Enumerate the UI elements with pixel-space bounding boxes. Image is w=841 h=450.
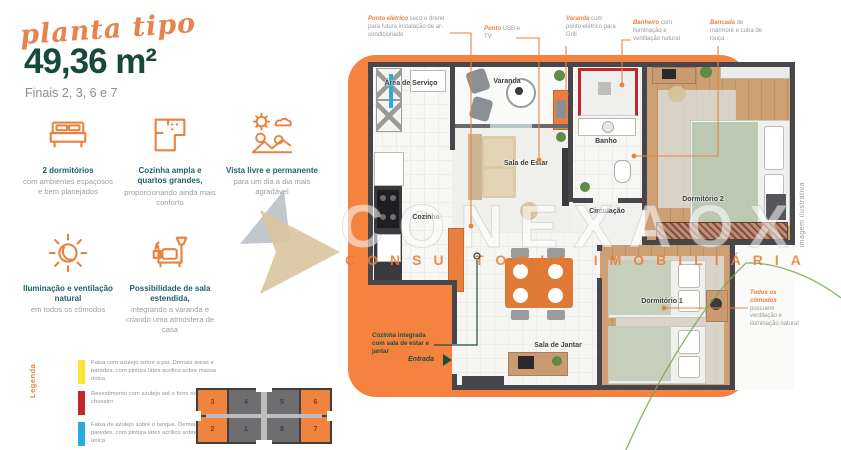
room-label-dormitorio1: Dormitório 1 [614,298,710,305]
feature-description: com ambientes espaçosos e bem planejados [22,177,114,197]
entrada-label: Entrada [408,356,434,363]
wall-outer-top [368,62,795,67]
unit-number: 1 [244,426,248,433]
callout-ponto-eletrico: Ponto elétrico seco e dreno para futura … [368,16,448,39]
callout-banheiro: Banheiro com iluminação e ventilação nat… [633,20,695,43]
callout-bancada: Bancada de mármore e cuba de louça [710,20,768,43]
feature-title: Possibilidade de sala estendida, [124,284,216,305]
plant [554,70,565,81]
legend-title: Legenda [28,364,37,398]
wall-banho-left [568,62,573,202]
dining-chair [547,310,565,320]
room-label-banho: Banho [574,138,638,145]
callout-bold: Ponto elétrico [368,16,408,22]
vanity-sink [602,121,614,133]
wall-dorm1-left-lower [597,278,602,390]
callout-bold: Cozinha [372,332,396,339]
callout-ponto-usb-tv: Ponto USB e TV [484,26,528,42]
callout-varanda-grill: Varanda com ponto elétrico para Grill [566,16,618,39]
wall-servico-varanda [450,62,455,150]
pillow [678,330,700,354]
wall-jantar-left-lower [452,374,457,390]
view-landscape-icon [249,112,295,158]
laptop [662,69,676,79]
disclaimer-vertical-text: imagem ilustrativa [799,182,806,247]
keyplan-unit-6: 6 [301,390,330,415]
keyplan-corridor-v [261,392,267,440]
feature-description: integrando a varanda e criando uma atmos… [124,305,216,335]
keyplan: 3 4 5 6 2 1 8 7 [196,388,332,444]
dresser [766,194,786,220]
callout-bold: Banheiro [633,20,659,26]
wall-banho-bottom-right [618,198,647,203]
room-label-area-servico: Área de Serviço [376,80,446,89]
wall-outer-right-lower [730,245,735,390]
feature-title: Iluminação e ventilação natural [22,284,114,305]
room-label-sala-jantar: Sala de Jantar [508,342,608,349]
floorplan-icon [147,112,193,158]
room-label-dormitorio2: Dormitório 2 [663,196,743,203]
keyplan-notch-left [196,411,201,421]
feature-iluminacao: Iluminação e ventilação natural em todos… [22,230,114,335]
keyplan-unit-3: 3 [198,390,227,415]
keyplan-unit-7: 7 [301,417,330,442]
callout-bold: Varanda [566,16,589,22]
keyplan-unit-4: 4 [229,390,263,415]
room-label-sala-estar: Sala de Estar [486,160,566,167]
sun-icon [45,230,91,276]
legend-text: Faixa com azulejo sobre a pia. Demais ár… [91,360,228,384]
armchair-lamp-icon [147,230,193,276]
floor-plan: Área de Serviço Varanda Sala de Estar Ba… [368,62,795,390]
units-subtitle: Finais 2, 3, 6 e 7 [25,86,117,100]
plant [556,132,566,142]
callout-todos-comodos: Todos os cômodos possuem ventilação e il… [750,290,802,329]
callout-bold: Ponto [484,26,501,32]
unit-number: 3 [211,399,215,406]
grill [556,100,566,118]
plate [513,288,528,303]
unit-number: 5 [280,399,284,406]
feature-list: 2 dormitórios com ambientes espaçosos e … [22,112,318,335]
keyplan-notch-top [256,388,272,392]
keyplan-notch-right [327,411,332,421]
feature-cozinha-ampla: Cozinha ampla e quartos grandes, proporc… [124,112,216,208]
plate [548,288,563,303]
plant [700,66,712,78]
balcony-glass-door [490,124,532,128]
wall-banho-dorm2-upper [642,62,647,210]
wardrobe-dormitorio2 [656,222,788,240]
keyplan-unit-1: 1 [229,417,263,442]
wall-jantar-left-upper [452,280,457,344]
entrance-door [462,376,504,385]
plate [548,264,563,279]
keyplan-notch-bottom [256,440,272,444]
feature-description: proporcionando ainda mais conforto [124,188,216,208]
unit-number: 7 [314,426,318,433]
callout-rest: possuem ventilação e iluminação natural [750,306,799,328]
wall-outer-left [368,62,373,285]
unit-number: 8 [280,426,284,433]
unit-number: 6 [314,399,318,406]
dining-chair [511,248,529,258]
page-title-area: 49,36 m² [24,42,156,82]
stove-burner [380,195,386,201]
stove-burner [390,195,396,201]
table-kettle [515,87,523,95]
feature-vista-livre: Vista livre e permanente para um dia a d… [226,112,318,208]
feature-description: em todos os cômodos [31,305,105,315]
bed-blanket [692,122,758,222]
plant [552,356,562,366]
callout-bold: Todos os cômodos [750,290,777,304]
room-label-varanda: Varanda [472,78,542,85]
feature-description: para um dia a dia mais agradável [226,177,318,197]
shower-drain [598,82,611,95]
feature-title: 2 dormitórios [42,166,93,176]
entrada-arrow-icon [443,354,452,366]
fridge [374,152,404,186]
balcony-chair [468,96,493,123]
wall-outer-right-upper [790,62,795,245]
dining-chair [547,248,565,258]
stove-burner [380,214,386,220]
plate [513,264,528,279]
sofa-cushion [484,169,513,196]
callout-bold: Bancada [710,20,735,26]
keyplan-unit-8: 8 [265,417,299,442]
lamp [710,298,722,310]
pillow [678,356,700,378]
desk-chair [668,86,686,102]
page: planta tipo 49,36 m² Finais 2, 3, 6 e 7 … [0,0,841,450]
unit-number: 4 [244,399,248,406]
feature-title: Vista livre e permanente [226,166,318,176]
callout-cozinha-integrada: Cozinha integrada com sala de estar e ja… [372,332,432,356]
pillow [764,126,784,170]
feature-sala-estendida: Possibilidade de sala estendida, integra… [124,230,216,335]
pillow [678,264,700,288]
wall-banho-bottom-left [573,198,593,203]
bed-blanket [609,327,671,381]
toilet [614,160,631,183]
dining-chair [511,310,529,320]
pouf [520,202,538,220]
sofa-back [468,134,482,200]
legend-swatch-blue [78,422,85,446]
wall-dorm2-bottom [645,240,795,245]
unit-number: 2 [211,426,215,433]
wall-outer-bottom [452,385,735,390]
keyplan-unit-5: 5 [265,390,299,415]
bed-blanket [609,261,671,315]
kitchen-sink [377,234,401,262]
keyplan-unit-2: 2 [198,417,227,442]
bed-icon [45,112,91,158]
laptop [518,356,534,369]
plant [580,182,590,192]
room-label-cozinha: Cozinha [396,214,456,221]
legend-swatch-red [78,391,85,415]
legend-swatch-yellow [78,360,85,384]
wall-dorm1-left-upper [597,245,602,251]
room-label-circulacao: Circulação [572,208,642,215]
feature-dormitorios: 2 dormitórios com ambientes espaçosos e … [22,112,114,208]
feature-title: Cozinha ampla e quartos grandes, [124,166,216,187]
legend-item: Faixa com azulejo sobre a pia. Demais ár… [78,360,228,384]
